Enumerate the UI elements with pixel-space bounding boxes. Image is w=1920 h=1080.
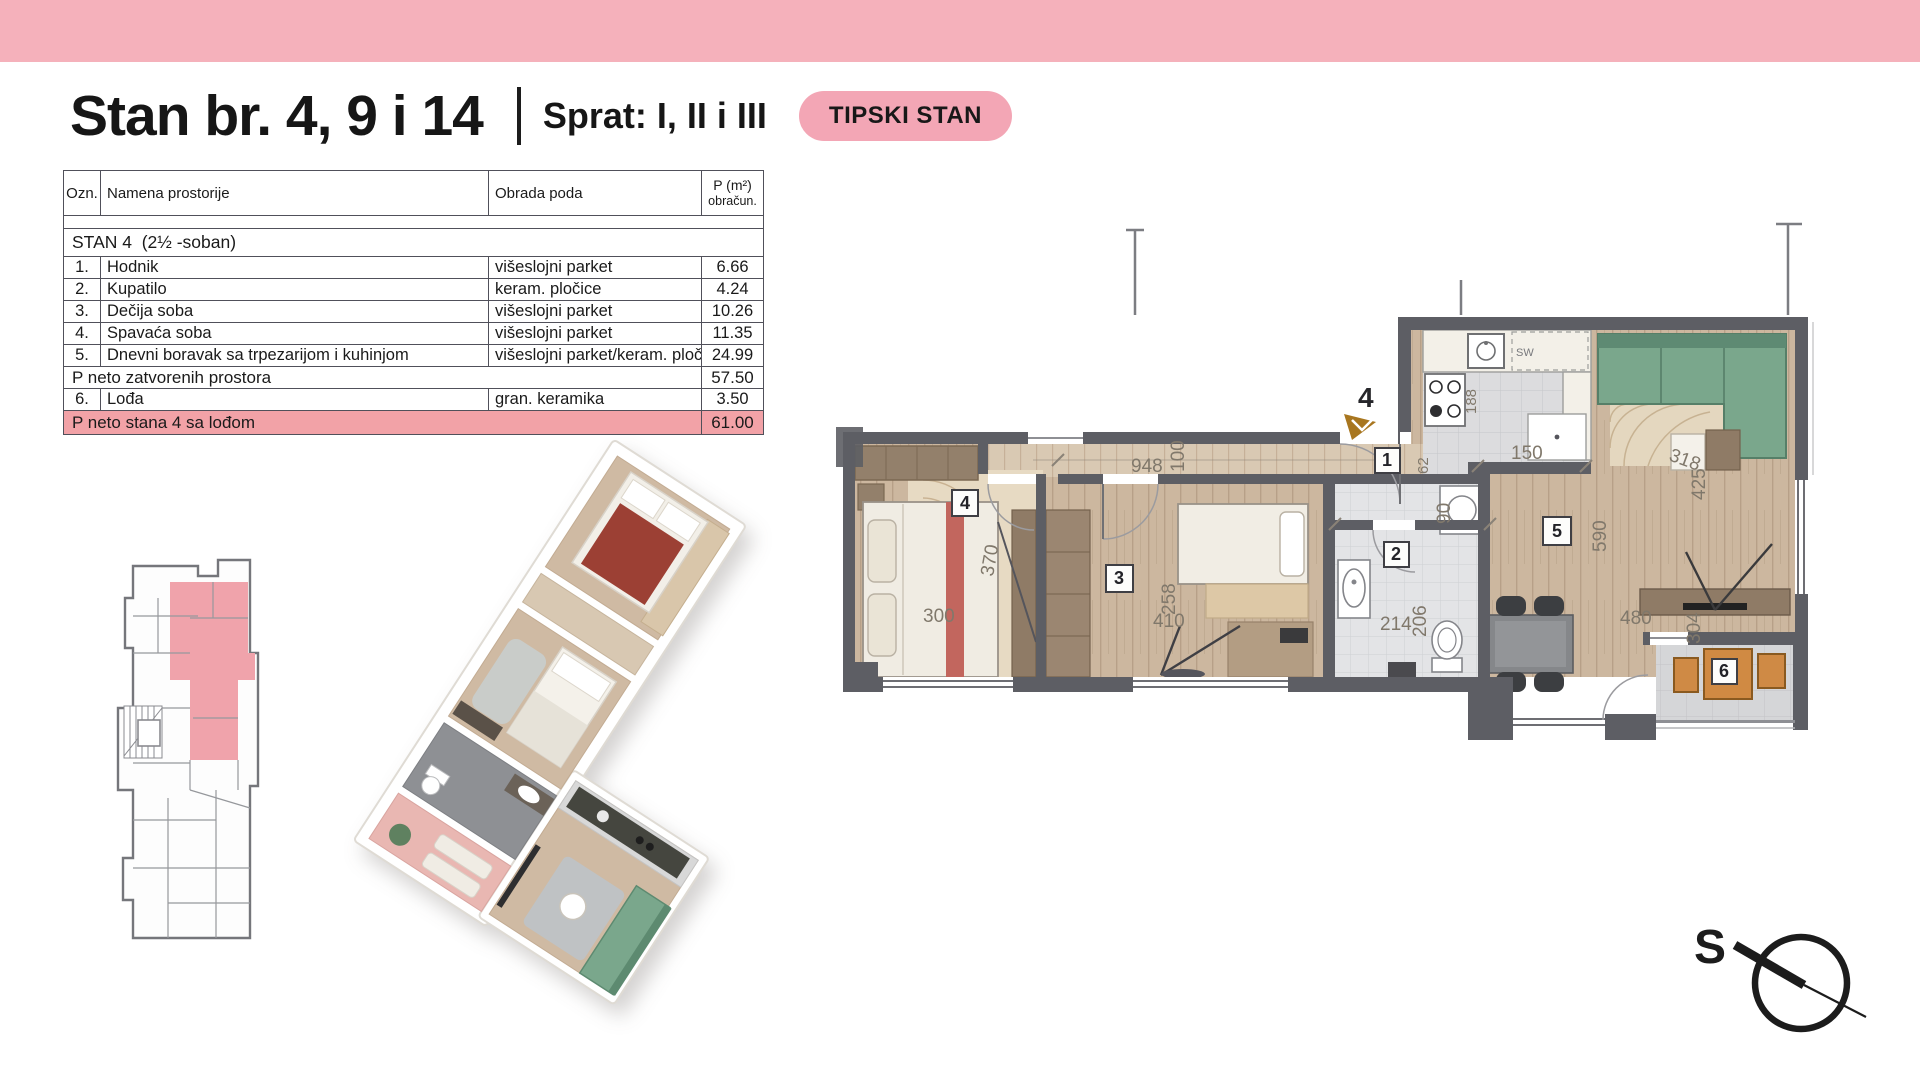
row-ozn: 6.: [64, 389, 101, 411]
row-finish: višeslojni parket: [489, 257, 702, 279]
row-ozn: 5.: [64, 345, 101, 367]
dim-62: 62: [1415, 457, 1432, 474]
row-name: Dnevni boravak sa trpezarijom i kuhinjom: [101, 345, 489, 367]
entrance-number: 4: [1358, 382, 1374, 413]
col-name: Namena prostorije: [101, 171, 489, 216]
type-badge: TIPSKI STAN: [799, 91, 1012, 141]
dim-590: 590: [1590, 520, 1611, 552]
table-row: 4. Spavaća soba višeslojni parket 11.35: [64, 323, 764, 345]
table-header-row: Ozn. Namena prostorije Obrada poda P (m²…: [64, 171, 764, 216]
title-row: Stan br. 4, 9 i 14 Sprat: I, II i III TI…: [70, 76, 1012, 156]
subtotal-row: P neto zatvorenih prostora 57.50: [64, 367, 764, 389]
col-finish: Obrada poda: [489, 171, 702, 216]
room-2-label: 2: [1391, 544, 1401, 564]
col-area: P (m²) obračun.: [702, 171, 764, 216]
section-note: (2½ -soban): [142, 232, 236, 252]
compass: S: [1680, 905, 1910, 1055]
title-divider: [517, 87, 521, 145]
stairs-symbol: [124, 706, 162, 758]
dim-300: 300: [923, 606, 955, 627]
table-row: 5. Dnevni boravak sa trpezarijom i kuhin…: [64, 345, 764, 367]
dim-150: 150: [1511, 443, 1543, 464]
dim-90: 90: [1434, 503, 1455, 524]
brochure-page: Stan br. 4, 9 i 14 Sprat: I, II i III TI…: [0, 0, 1920, 1080]
table-row-loggia: 6. Lođa gran. keramika 3.50: [64, 389, 764, 411]
row-ozn: 1.: [64, 257, 101, 279]
row-name: Spavaća soba: [101, 323, 489, 345]
row-area: 24.99: [702, 345, 764, 367]
row-area: 10.26: [702, 301, 764, 323]
row-finish: keram. pločice: [489, 279, 702, 301]
row-finish: višeslojni parket: [489, 323, 702, 345]
room-5-label: 5: [1552, 521, 1562, 541]
kitchen-sink-label: SW: [1516, 347, 1534, 359]
row-name: Lođa: [101, 389, 489, 411]
row-finish: višeslojni parket/keram. ploč.: [489, 345, 702, 367]
entrance-marker: 4: [1344, 382, 1377, 440]
table-row: 2. Kupatilo keram. pločice 4.24: [64, 279, 764, 301]
section-row: STAN 4 (2½ -soban): [64, 229, 764, 257]
room-3-label: 3: [1114, 568, 1124, 588]
isometric-3d-plan: [330, 440, 850, 1040]
subtotal-label: P neto zatvorenih prostora: [64, 367, 702, 389]
floor-plan-2d: 948 100 300 370 410 258 62 90 214 206 15…: [828, 222, 1878, 747]
dim-100: 100: [1168, 440, 1189, 472]
dim-304: 304: [1684, 612, 1705, 644]
row-finish: višeslojni parket: [489, 301, 702, 323]
row-ozn: 3.: [64, 301, 101, 323]
area-table: Ozn. Namena prostorije Obrada poda P (m²…: [63, 170, 764, 435]
table-row: 1. Hodnik višeslojni parket 6.66: [64, 257, 764, 279]
row-name: Hodnik: [101, 257, 489, 279]
dim-188: 188: [1463, 389, 1480, 414]
row-area: 4.24: [702, 279, 764, 301]
row-area: 6.66: [702, 257, 764, 279]
room-4-label: 4: [960, 493, 970, 513]
dim-206: 206: [1410, 605, 1431, 637]
dim-948: 948: [1131, 456, 1163, 477]
row-name: Dečija soba: [101, 301, 489, 323]
row-area: 11.35: [702, 323, 764, 345]
total-row: P neto stana 4 sa lođom 61.00: [64, 411, 764, 435]
dim-258: 258: [1159, 583, 1180, 615]
table-row: 3. Dečija soba višeslojni parket 10.26: [64, 301, 764, 323]
col-area-line2: obračun.: [708, 194, 757, 208]
compass-north-label: S: [1694, 921, 1726, 974]
room-6-label: 6: [1719, 661, 1729, 681]
total-area: 61.00: [702, 411, 764, 435]
section-name: STAN 4: [72, 232, 132, 252]
area-table-wrap: Ozn. Namena prostorije Obrada poda P (m²…: [63, 170, 764, 435]
dim-214: 214: [1380, 614, 1412, 635]
row-ozn: 4.: [64, 323, 101, 345]
row-area: 3.50: [702, 389, 764, 411]
top-accent-bar: [0, 0, 1920, 62]
row-finish: gran. keramika: [489, 389, 702, 411]
floor-label: Sprat: I, II i III: [543, 95, 767, 137]
total-label: P neto stana 4 sa lođom: [64, 411, 702, 435]
room-1-label: 1: [1382, 450, 1392, 470]
spacer-row: [64, 216, 764, 229]
page-title: Stan br. 4, 9 i 14: [70, 83, 483, 149]
dim-480: 480: [1620, 608, 1652, 629]
row-name: Kupatilo: [101, 279, 489, 301]
col-area-line1: P (m²): [713, 177, 752, 193]
col-ozn: Ozn.: [64, 171, 101, 216]
row-ozn: 2.: [64, 279, 101, 301]
building-key-plan: [98, 558, 268, 948]
subtotal-area: 57.50: [702, 367, 764, 389]
